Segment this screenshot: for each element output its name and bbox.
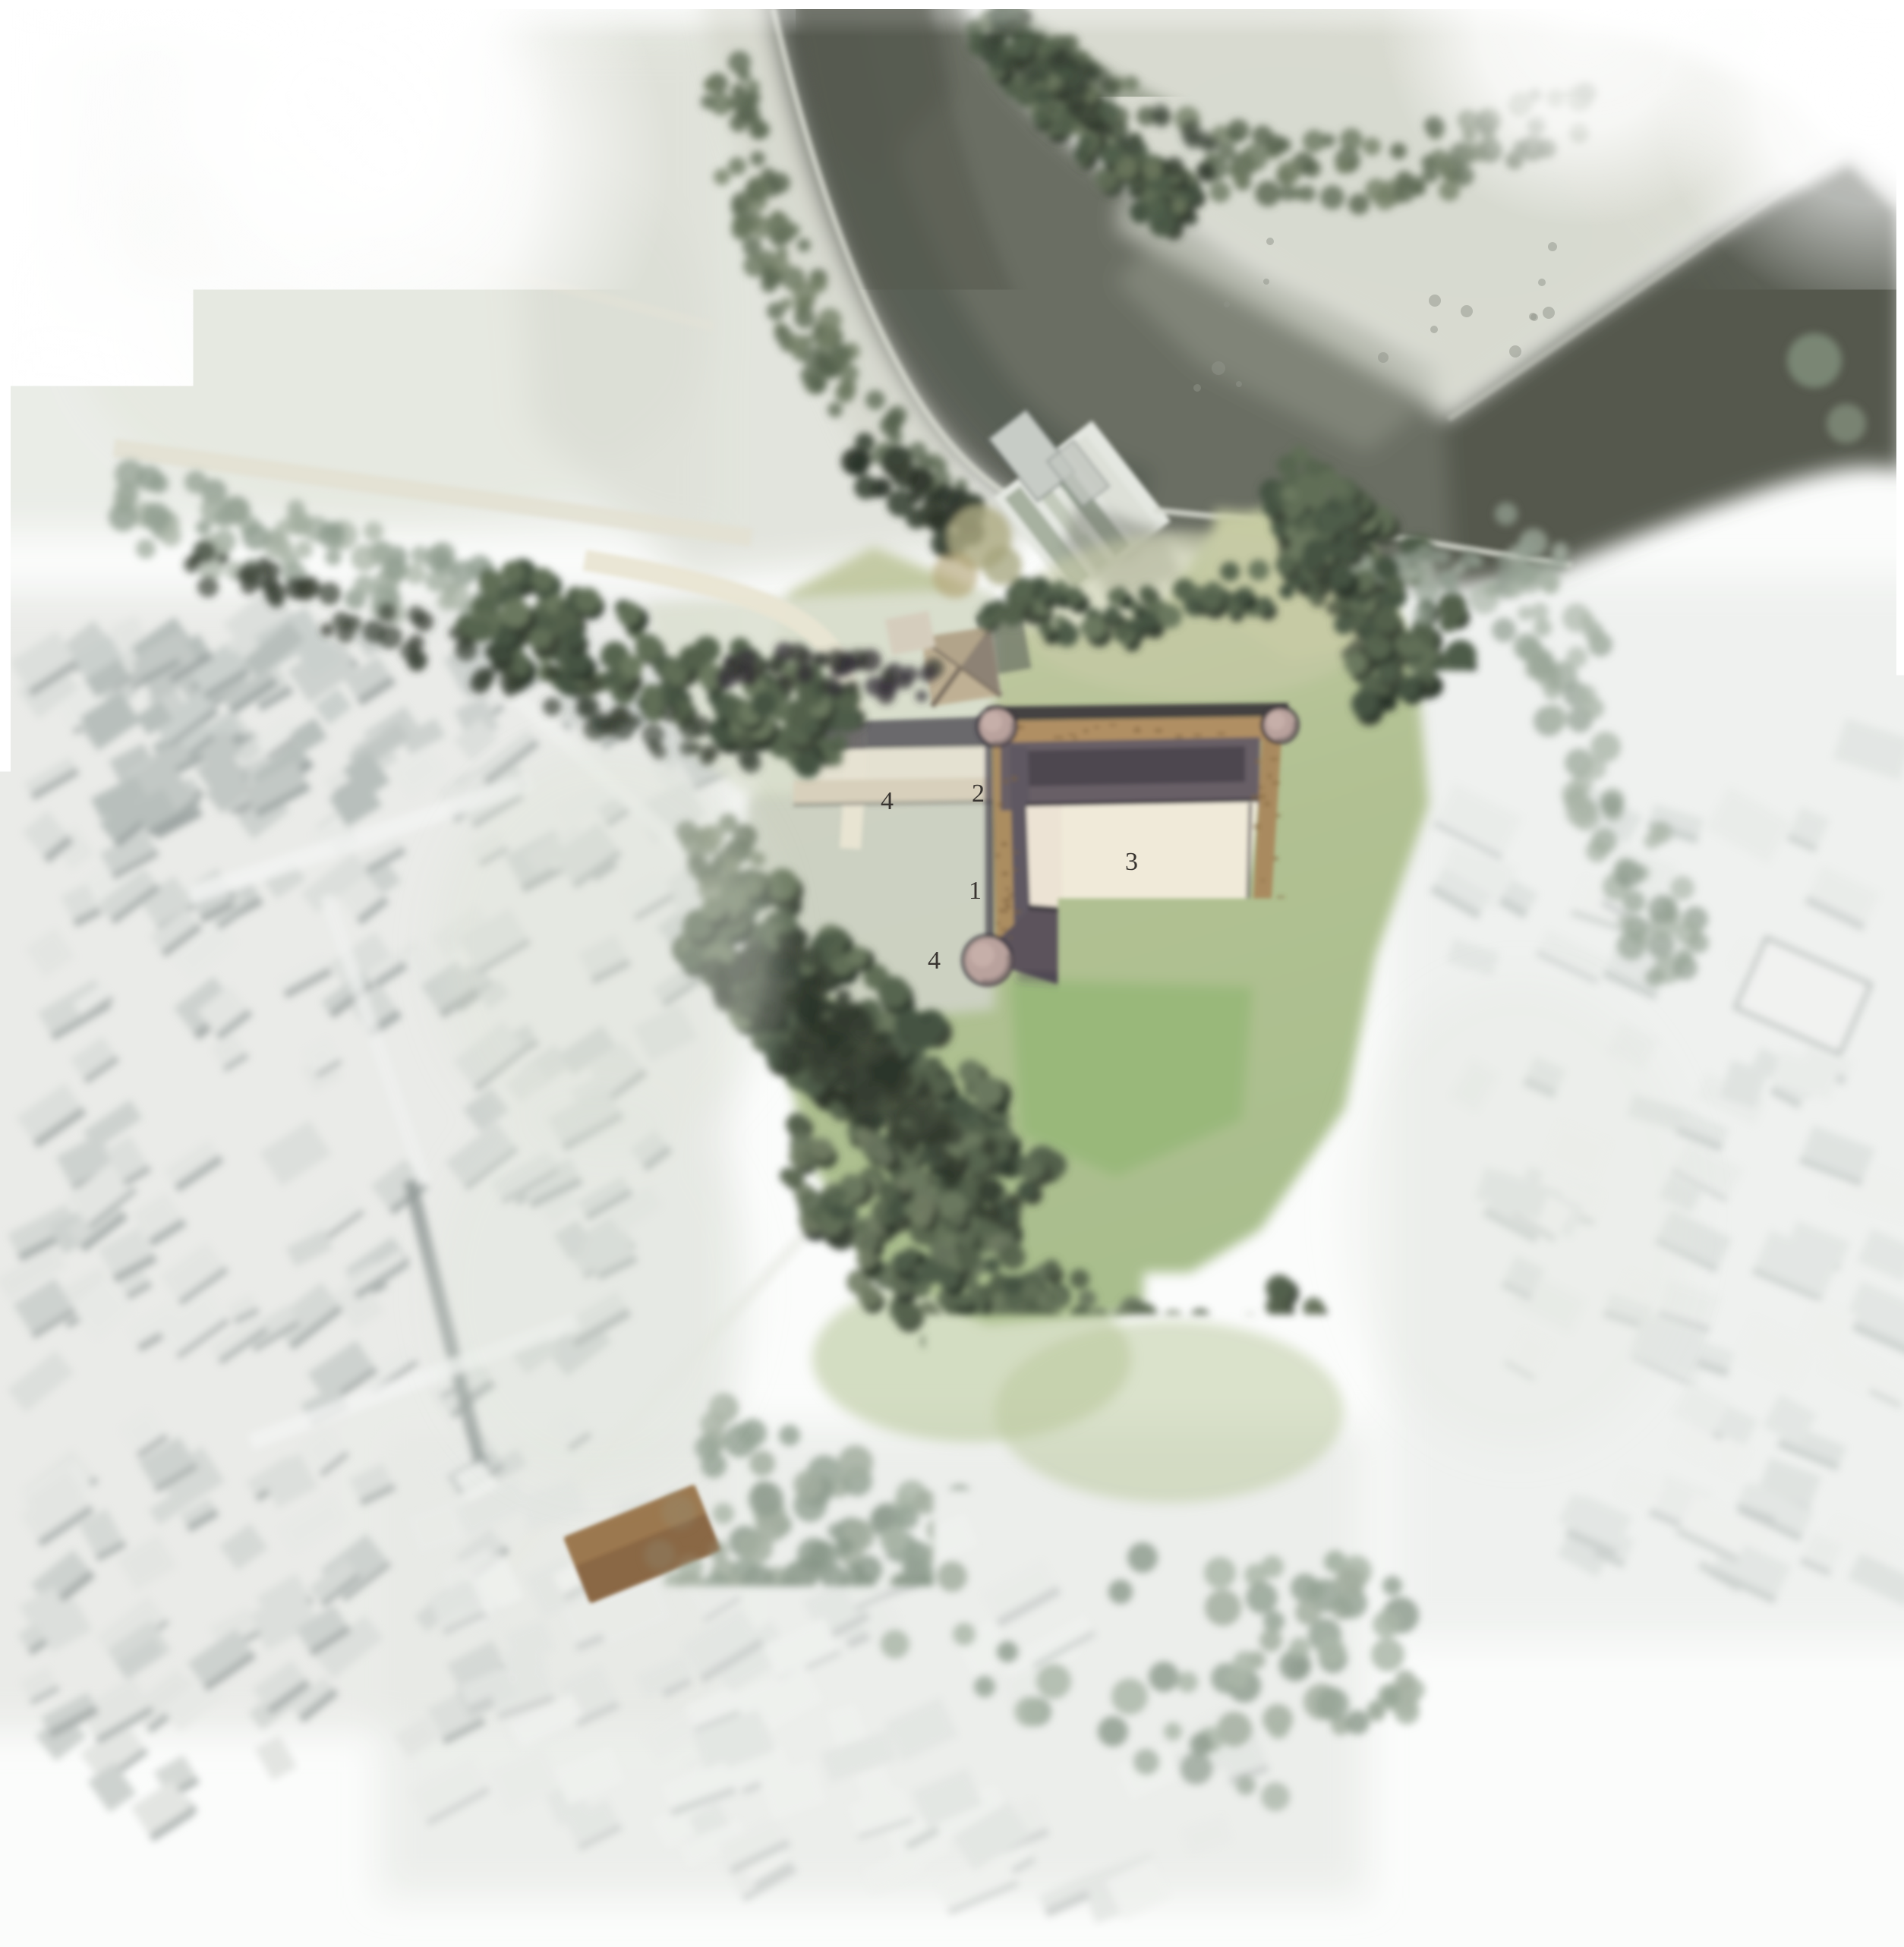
svg-text:1: 1 [969, 877, 982, 905]
svg-text:4: 4 [881, 787, 894, 815]
svg-text:4: 4 [928, 947, 941, 975]
svg-text:3: 3 [1125, 848, 1138, 876]
svg-text:2: 2 [972, 780, 985, 808]
